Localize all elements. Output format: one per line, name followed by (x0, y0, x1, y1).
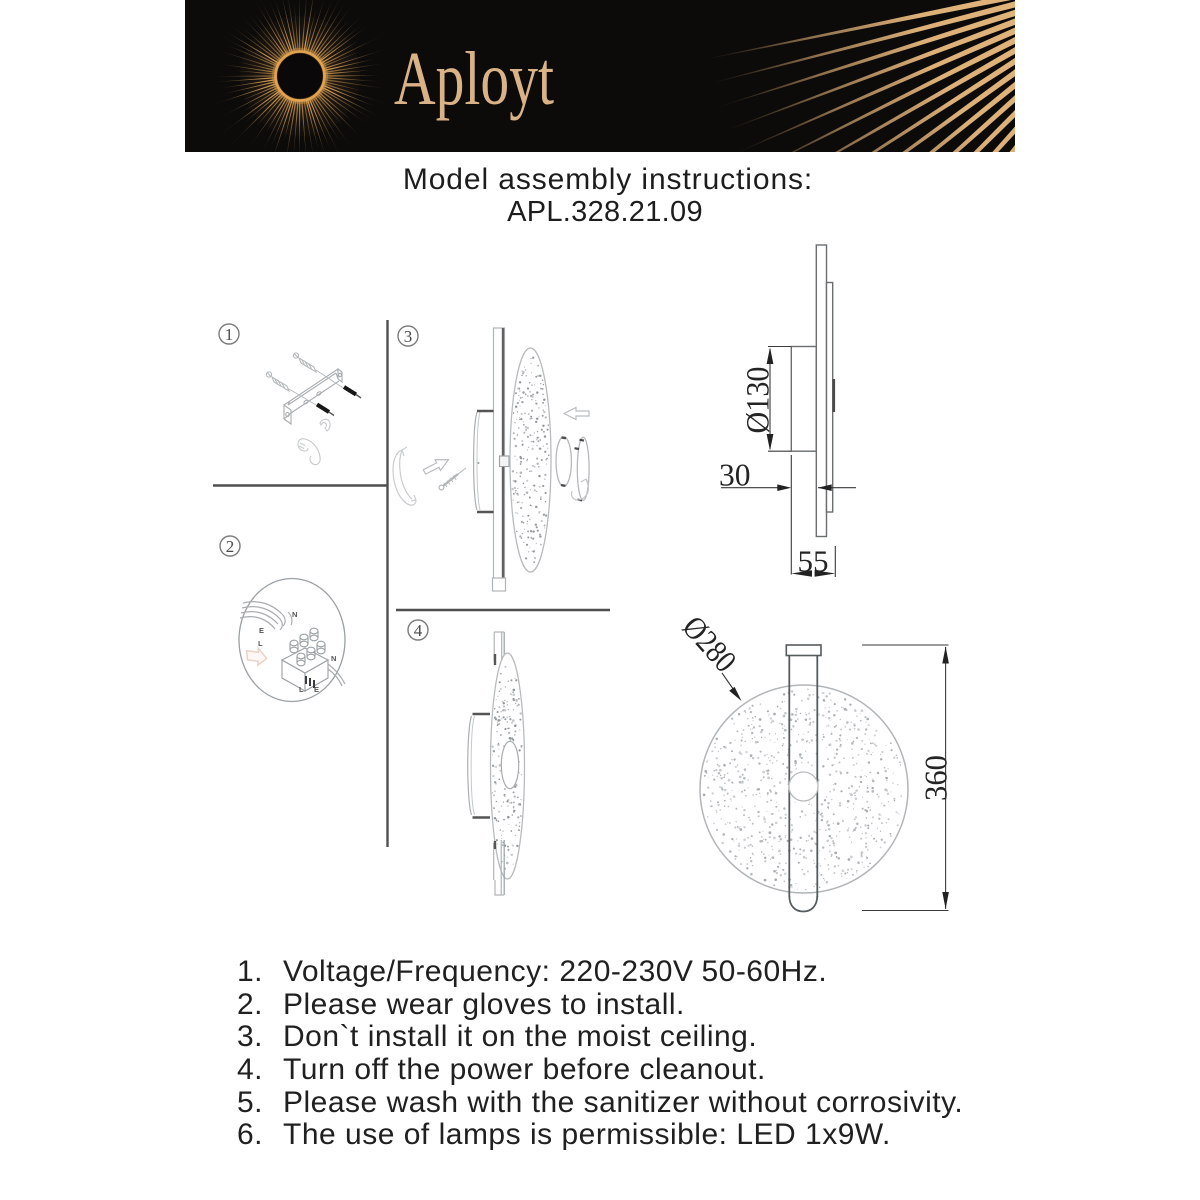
svg-text:Ø280: Ø280 (676, 609, 744, 679)
svg-text:N: N (331, 654, 336, 663)
svg-text:L: L (299, 685, 304, 694)
svg-text:55: 55 (798, 544, 829, 579)
svg-text:Aployt: Aployt (394, 37, 554, 121)
svg-text:360: 360 (918, 755, 954, 801)
svg-text:4: 4 (414, 621, 423, 640)
svg-text:E: E (259, 626, 264, 635)
svg-text:N: N (292, 610, 297, 619)
svg-text:E: E (314, 685, 319, 694)
svg-text:2: 2 (226, 537, 235, 556)
svg-text:3: 3 (404, 327, 413, 346)
svg-text:L: L (258, 639, 263, 648)
svg-text:Ø130: Ø130 (741, 367, 777, 434)
svg-text:1: 1 (225, 325, 234, 344)
